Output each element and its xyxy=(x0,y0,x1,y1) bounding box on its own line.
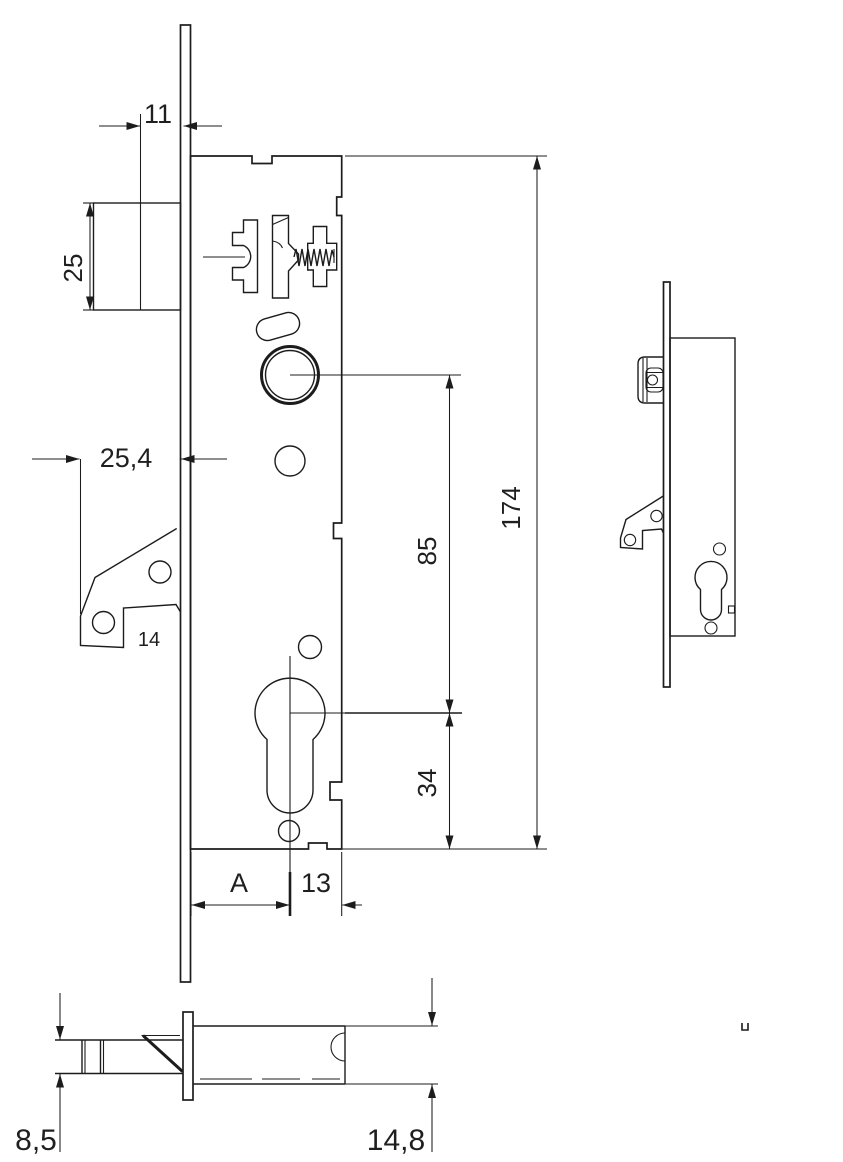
euro-cylinder-side xyxy=(695,561,727,620)
cylinder-screw-hole xyxy=(279,821,300,842)
latch-bevel-diagonal xyxy=(143,1036,183,1072)
fixing-hole-upper xyxy=(275,446,305,476)
latch-head xyxy=(233,220,258,293)
cylinder-end-arc xyxy=(331,1033,345,1061)
bracket-hole-lower xyxy=(93,612,115,634)
latch-side-pin xyxy=(648,375,658,385)
fixing-hole-side xyxy=(714,543,726,555)
bracket-side-hole-lower xyxy=(624,534,635,545)
dim-label-34: 34 xyxy=(412,769,442,798)
oval-slot xyxy=(254,310,302,343)
dim-label-148: 14,8 xyxy=(367,1124,425,1157)
follower-diagonal xyxy=(273,218,289,225)
stray-mark xyxy=(742,1023,748,1030)
cylinder-screw-hole-side xyxy=(705,622,717,634)
latch-side-barrel xyxy=(646,368,663,392)
dim-label-11: 11 xyxy=(144,99,172,129)
faceplate-front xyxy=(181,25,191,982)
latch-spring xyxy=(294,249,334,266)
dim-label-85: 85 xyxy=(412,537,442,566)
faceplate-side xyxy=(664,282,671,687)
dim-label-25: 25 xyxy=(58,254,88,283)
mortise-lock-drawing: 11 25 25,4 14 A 13 85 34 174 8,5 14,8 xyxy=(0,0,843,1162)
case-side-notch xyxy=(729,606,735,613)
drawing-canvas: 11 25 25,4 14 A 13 85 34 174 8,5 14,8 xyxy=(0,0,843,1162)
front-view xyxy=(81,25,463,982)
dim-label-13: 13 xyxy=(301,868,331,898)
latch-side xyxy=(638,357,664,403)
bottom-view xyxy=(55,1012,345,1100)
dim-label-85mm: 8,5 xyxy=(15,1124,57,1157)
follower-curve xyxy=(273,241,283,248)
lock-case-outline xyxy=(191,156,342,849)
bracket-side-hole-upper xyxy=(651,510,662,521)
fixing-hole-middle xyxy=(299,636,322,659)
lock-case-side xyxy=(670,338,735,636)
dim-label-14: 14 xyxy=(138,629,160,651)
faceplate-bottom xyxy=(183,1012,193,1100)
bracket-hole-upper xyxy=(149,561,171,583)
mounting-bracket-side xyxy=(621,496,664,549)
dim-label-174: 174 xyxy=(496,486,526,529)
dim-label-A: A xyxy=(230,868,248,898)
latch-keep-box xyxy=(94,203,181,310)
dim-label-254: 25,4 xyxy=(100,443,153,473)
side-view xyxy=(621,282,736,687)
